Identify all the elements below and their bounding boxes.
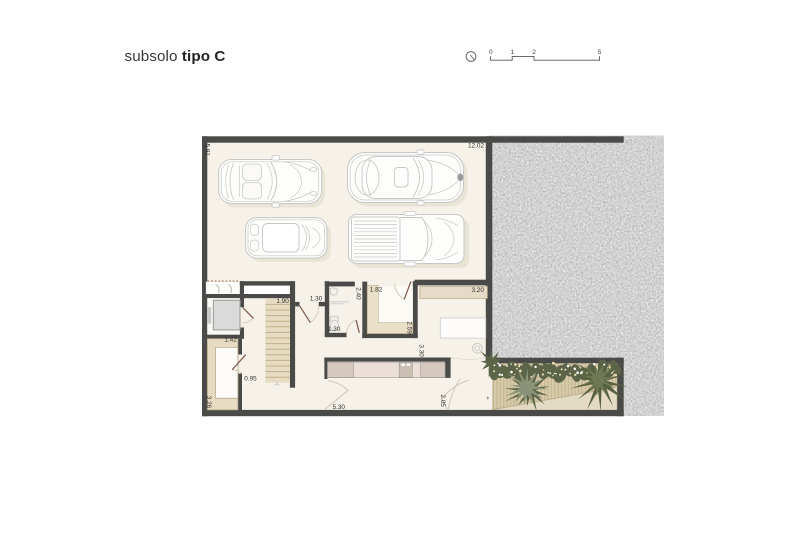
svg-text:3.30: 3.30 [418,344,425,357]
svg-text:5: 5 [598,49,602,56]
svg-text:3.20: 3.20 [471,287,484,294]
svg-text:2: 2 [532,49,536,56]
svg-text:1.42: 1.42 [224,337,237,344]
svg-text:subsolo tipo C: subsolo tipo C [125,48,226,65]
svg-text:0.95: 0.95 [244,376,257,383]
svg-text:2.40: 2.40 [354,287,361,300]
svg-text:3.26: 3.26 [205,396,212,409]
svg-text:2.05: 2.05 [439,394,446,407]
svg-text:5.30: 5.30 [333,404,346,411]
svg-text:1.30: 1.30 [310,296,323,303]
svg-text:1.82: 1.82 [370,287,383,294]
svg-text:1: 1 [511,49,515,56]
svg-text:12.02: 12.02 [468,143,484,150]
svg-text:1.30: 1.30 [328,326,341,333]
svg-text:0: 0 [489,49,493,56]
svg-text:5.91: 5.91 [203,144,210,157]
svg-text:2.59: 2.59 [406,321,413,334]
svg-text:1.90: 1.90 [276,298,289,305]
